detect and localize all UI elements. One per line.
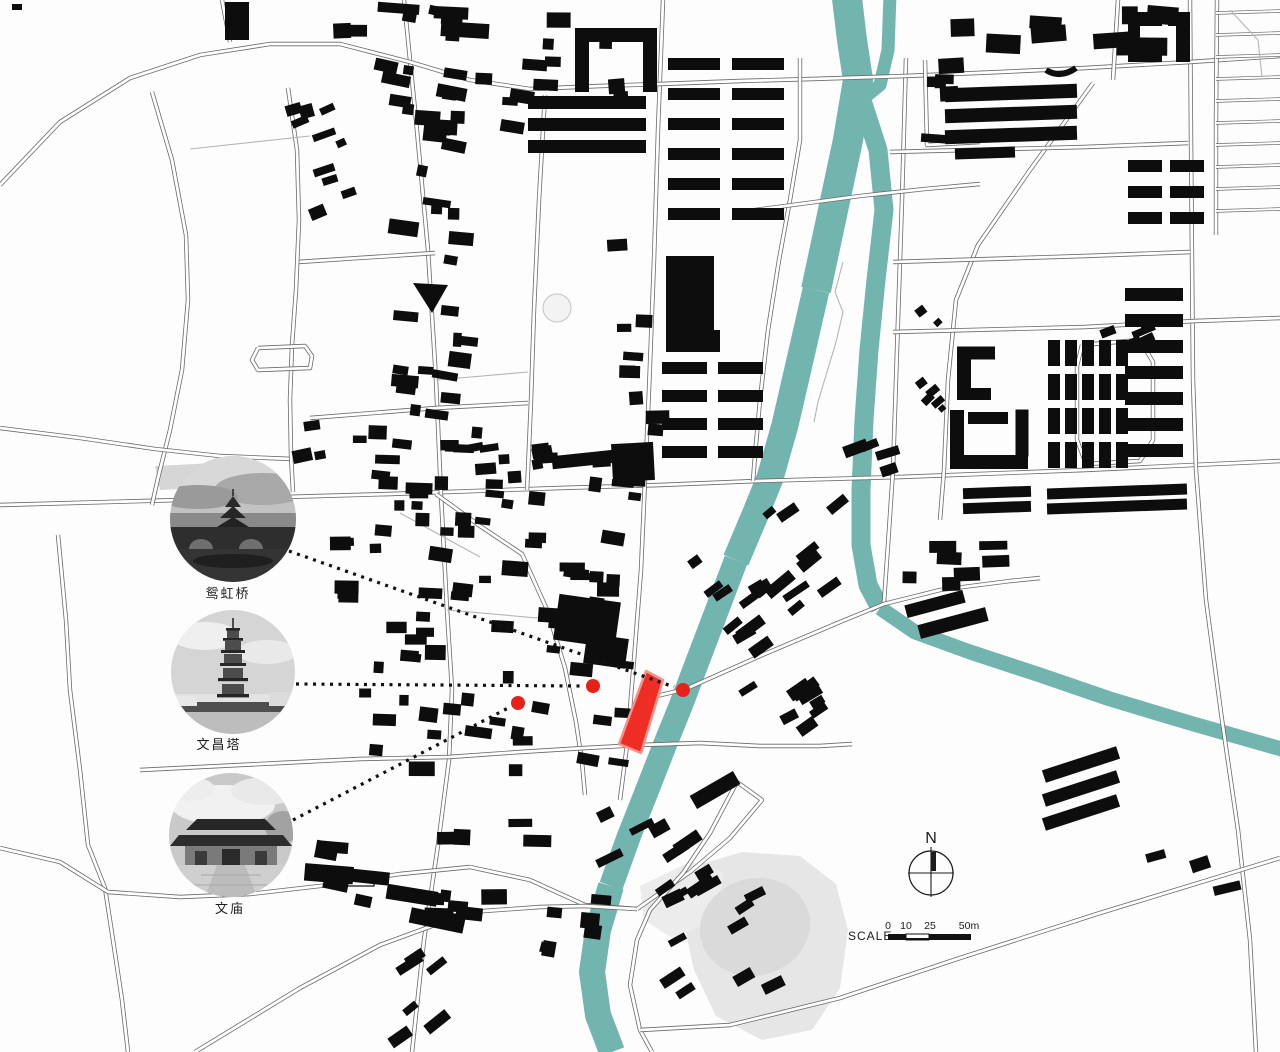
scale-bar: SCALE 0 10 25 50m — [848, 920, 979, 943]
scale-segment-3 — [929, 934, 971, 940]
scale-tick-10: 10 — [900, 920, 912, 932]
scale-segment-2-fill — [906, 938, 929, 940]
pagoda-label: 文昌塔 — [196, 737, 241, 752]
covered-bridge-photo — [153, 443, 311, 582]
scale-tick-50: 50m — [959, 920, 980, 932]
pagoda-photo — [171, 610, 297, 734]
temple-inset: 文庙 — [163, 773, 301, 916]
temple-photo — [163, 773, 301, 897]
pagoda-inset: 文昌塔 — [171, 610, 297, 752]
north-arrow-pointer — [931, 852, 936, 871]
north-arrow: N — [908, 830, 954, 897]
covered-bridge-label: 鸳虹桥 — [205, 586, 250, 601]
map-canvas: 鸳虹桥 — [0, 0, 1280, 1052]
north-label: N — [925, 830, 937, 847]
site-location-map: 鸳虹桥 — [0, 0, 1280, 1052]
temple-label: 文庙 — [215, 901, 245, 916]
scale-segment-1 — [888, 934, 906, 940]
scale-tick-25: 25 — [924, 920, 936, 932]
scale-tick-0: 0 — [885, 920, 891, 932]
